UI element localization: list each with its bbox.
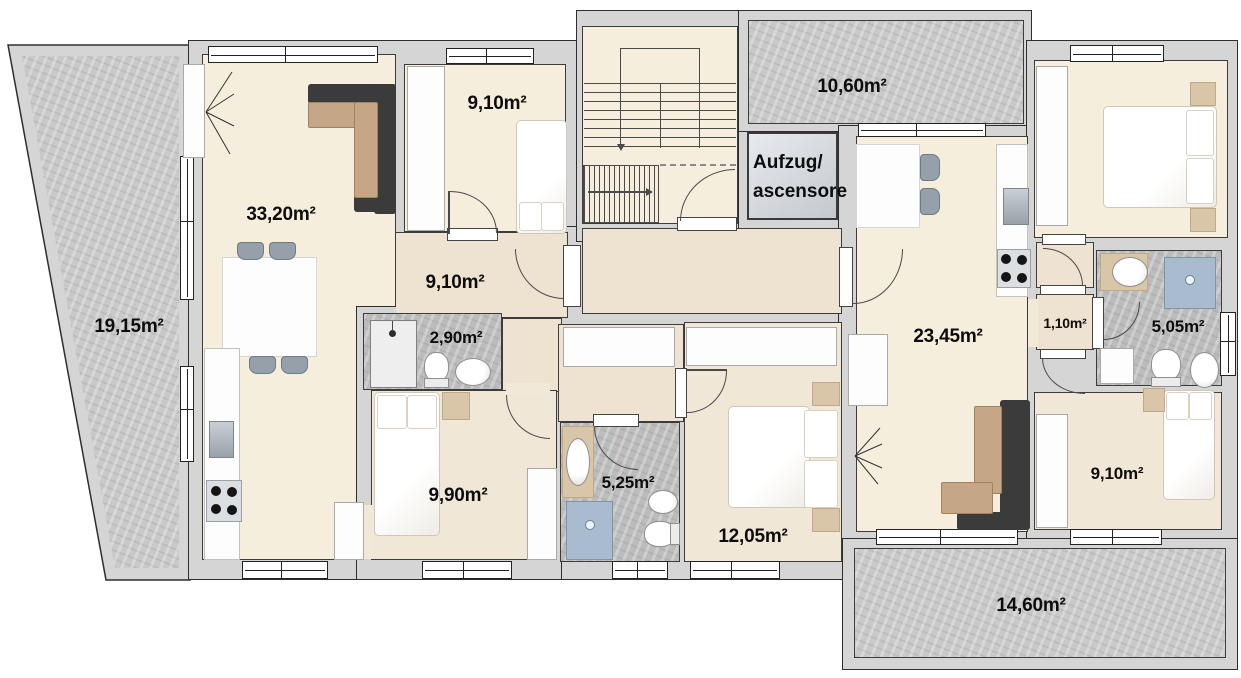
- chair: [920, 154, 940, 181]
- toilet-tank: [424, 378, 449, 388]
- room-label-bedroom-mid-left: 9,90m²: [428, 485, 487, 507]
- sofa-seat: [941, 482, 993, 514]
- room-label-hall-left: 9,10m²: [425, 272, 484, 294]
- nightstand: [1190, 208, 1216, 232]
- wardrobe: [686, 327, 837, 366]
- room-label-bath-small: 2,90m²: [430, 328, 483, 348]
- sofa-seat: [354, 102, 378, 198]
- folding-door-icon: [204, 66, 236, 158]
- sink: [566, 438, 590, 486]
- door-frame-closet-bath: [1092, 297, 1104, 349]
- room-label-balcony-top-right: 10,60m²: [817, 76, 886, 98]
- chair: [237, 242, 264, 260]
- pillow: [1186, 110, 1214, 156]
- window-living-left-top: [208, 46, 378, 63]
- shower-head-icon: [585, 520, 595, 530]
- room-label-bath-right: 5,05m²: [1152, 317, 1205, 337]
- chair: [920, 188, 940, 215]
- fridge: [1003, 188, 1029, 225]
- door-leaf-bedroom-top-left: [448, 191, 450, 234]
- nightstand: [442, 392, 470, 420]
- bidet: [1190, 352, 1219, 388]
- stove-burners-icon: [1001, 254, 1011, 264]
- window-bedroom-mid-left-bottom: [422, 561, 512, 579]
- shower-head-icon: [389, 330, 396, 337]
- elevator-label-de: Aufzug/: [753, 148, 836, 177]
- room-label-closet-right: 1,10m²: [1043, 315, 1086, 331]
- pillow: [804, 410, 838, 458]
- window-bedroom-bottom-right-bottom: [1070, 529, 1162, 545]
- toilet-tank: [670, 523, 680, 545]
- window-bedroom-top-left: [446, 48, 534, 64]
- chair: [249, 356, 276, 374]
- toilet-tank: [1151, 377, 1181, 387]
- plant-icon: [852, 424, 884, 488]
- stove-burners-icon: [211, 486, 221, 496]
- door-frame-hall-left: [563, 245, 581, 307]
- dining-table: [856, 144, 920, 228]
- elevator-label-it: ascensore: [753, 177, 836, 206]
- window-bedroom-top-right-top: [1070, 45, 1164, 62]
- door-frame-living-right: [839, 247, 853, 307]
- pillow: [804, 460, 838, 508]
- room-label-living-left: 33,20m²: [246, 204, 315, 226]
- nightstand: [1143, 388, 1165, 412]
- nightstand: [812, 382, 840, 406]
- nightstand: [1190, 82, 1216, 106]
- room-label-balcony-bottom-right: 14,60m²: [996, 595, 1065, 617]
- sofa-seat: [308, 102, 360, 128]
- window-bedroom-center-bottom: [690, 561, 780, 579]
- stair-dashed-line: [660, 164, 736, 166]
- balcony-door-panel-left: [183, 64, 205, 158]
- door-frame-bedroom-top-right: [1042, 234, 1086, 245]
- floor-plan: Aufzug/ ascensore: [0, 0, 1241, 678]
- wardrobe: [407, 66, 445, 231]
- door-frame-closet-top: [1040, 285, 1086, 295]
- wardrobe: [1036, 66, 1068, 226]
- chair: [269, 242, 296, 260]
- wardrobe: [1036, 414, 1068, 528]
- dining-table: [222, 257, 317, 357]
- pillow: [541, 202, 564, 231]
- door-panel-living-bedroom: [334, 502, 364, 560]
- room-label-bedroom-bottom-right: 9,10m²: [1091, 464, 1144, 484]
- sink: [455, 358, 491, 386]
- stair-arrow-down-icon: [617, 144, 625, 151]
- room-label-balcony-left: 19,15m²: [94, 316, 163, 338]
- shower-stem: [392, 321, 393, 331]
- door-gap-bedroom-mid-left: [506, 383, 550, 395]
- stair-divider-line: [660, 83, 661, 148]
- window-bath-mid-bottom: [612, 561, 668, 579]
- sofa-arm: [957, 512, 1005, 530]
- room-label-bedroom-top-left: 9,10m²: [467, 93, 526, 115]
- room-label-bedroom-center: 12,05m²: [718, 526, 787, 548]
- pillow: [1186, 158, 1214, 204]
- room-label-living-right: 23,45m²: [913, 326, 982, 348]
- stove: [206, 480, 242, 522]
- bed: [728, 406, 810, 508]
- shower: [566, 501, 613, 560]
- shower-head-icon: [1185, 275, 1195, 285]
- window-living-right-bottom: [876, 529, 1018, 545]
- window-living-left-balcony-lower: [180, 366, 194, 462]
- bidet: [648, 490, 678, 514]
- stair-arrow-line: [588, 191, 646, 193]
- door-gap-closet-kitchen: [1028, 299, 1038, 347]
- sink: [1112, 257, 1148, 287]
- chair: [281, 356, 308, 374]
- nightstand: [812, 508, 840, 532]
- room-hall-left-lower: [502, 318, 562, 392]
- window-living-left-balcony-upper: [180, 156, 194, 300]
- wardrobe: [527, 468, 557, 560]
- stair-arrow-right-icon: [646, 188, 653, 196]
- window-kitchen-left-bottom: [242, 561, 328, 579]
- wardrobe: [563, 327, 675, 367]
- sofa-back: [1000, 400, 1030, 530]
- fridge: [209, 421, 234, 458]
- pillow: [407, 395, 437, 429]
- room-corridor: [582, 228, 842, 314]
- door-frame-bedroom-center: [675, 368, 687, 418]
- window-living-right-balcony: [858, 123, 986, 137]
- washing-machine: [1100, 348, 1134, 384]
- window-bath-right-side: [1220, 312, 1236, 376]
- pillow: [1189, 392, 1212, 420]
- pillow: [1166, 392, 1189, 420]
- desk: [848, 334, 888, 406]
- pillow: [377, 395, 407, 429]
- balcony-top-right-floor: [748, 20, 1024, 124]
- door-leaf-bedroom-center: [687, 369, 727, 371]
- sofa-seat: [974, 406, 1002, 494]
- elevator-box: Aufzug/ ascensore: [747, 132, 838, 220]
- room-label-bath-mid: 5,25m²: [602, 473, 655, 493]
- pillow: [519, 202, 542, 231]
